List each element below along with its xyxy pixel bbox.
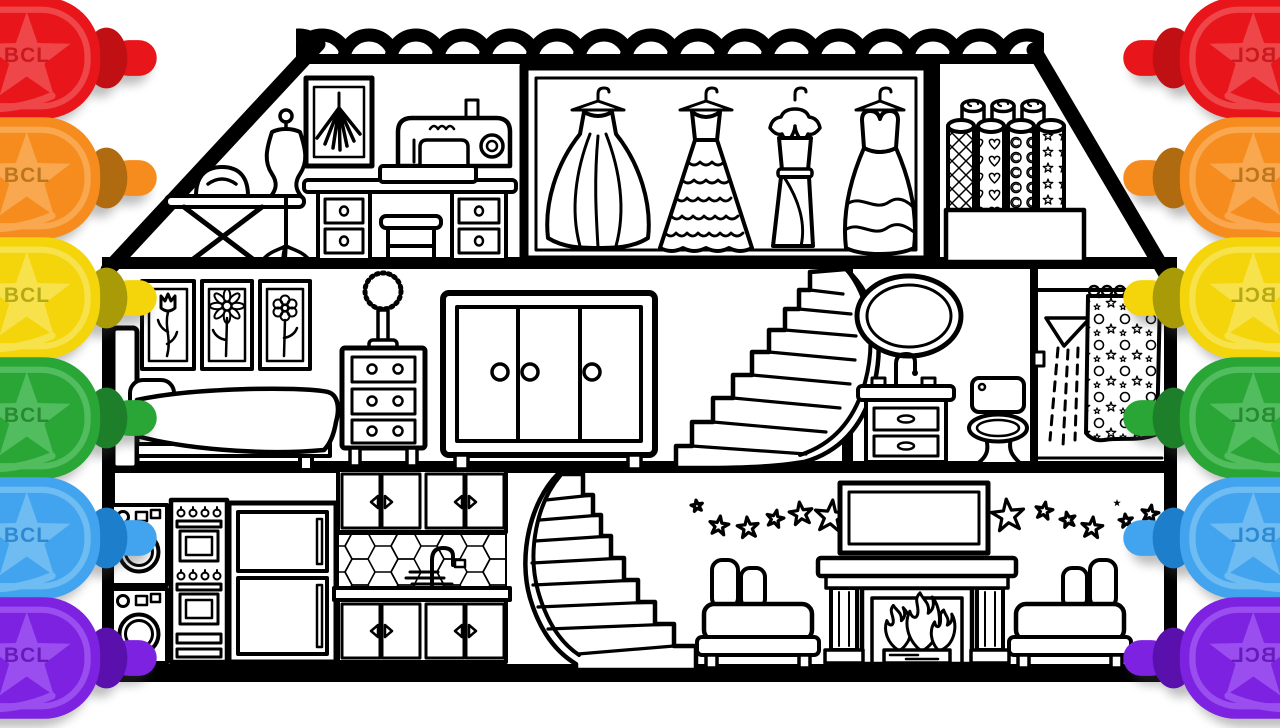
fabric-roll-moons bbox=[1010, 128, 1032, 216]
oval-mirror bbox=[857, 276, 961, 356]
fabric-storage bbox=[946, 101, 1084, 263]
coloring-page: { "palette": { "line": "#000000", "backg… bbox=[0, 0, 1280, 720]
dollhouse-line-art bbox=[0, 0, 1280, 720]
armchair-left bbox=[697, 560, 819, 668]
attic-picture bbox=[306, 78, 372, 166]
armchair-right bbox=[1009, 560, 1131, 668]
star-garland-right bbox=[990, 497, 1160, 538]
front-rolls bbox=[948, 120, 1064, 218]
bathroom bbox=[857, 276, 1027, 464]
refrigerator bbox=[229, 503, 336, 662]
star-garland-left bbox=[690, 498, 849, 538]
curved-staircase-lower bbox=[525, 474, 696, 670]
iron bbox=[196, 167, 248, 196]
storage-box bbox=[946, 210, 1084, 262]
lower-cabinets bbox=[338, 600, 506, 662]
blanket bbox=[137, 389, 338, 452]
washing-machine-top bbox=[112, 505, 167, 585]
shower-room bbox=[1034, 286, 1162, 458]
shower-head bbox=[1046, 318, 1090, 346]
dress-closet bbox=[524, 66, 928, 260]
shower-mount bbox=[1034, 352, 1044, 366]
upper-cabinets bbox=[338, 470, 506, 532]
tulip-picture bbox=[142, 281, 194, 369]
living-room bbox=[690, 483, 1160, 668]
wardrobe bbox=[443, 293, 655, 469]
wall-right bbox=[1164, 286, 1177, 670]
nightstand bbox=[342, 273, 425, 466]
flower-picture bbox=[260, 281, 310, 369]
fireplace bbox=[818, 558, 1016, 664]
curved-staircase-upper bbox=[676, 269, 879, 468]
toilet bbox=[969, 378, 1027, 464]
fabric-roll-diamond bbox=[950, 128, 972, 216]
bedroom bbox=[113, 273, 425, 470]
washing-machine-bottom bbox=[112, 589, 167, 663]
fabric-roll-stars bbox=[1040, 128, 1062, 216]
water-spray bbox=[1050, 342, 1088, 446]
sewing-machine bbox=[380, 100, 510, 182]
sewing-room bbox=[166, 78, 516, 266]
daisy-picture bbox=[202, 281, 252, 369]
logs bbox=[884, 650, 950, 663]
hex-tile-backsplash bbox=[338, 534, 506, 588]
fuzzy-lamp bbox=[365, 273, 401, 309]
stool bbox=[381, 216, 441, 262]
kitchen bbox=[112, 470, 510, 663]
television bbox=[840, 483, 988, 553]
fabric-roll-hearts bbox=[980, 128, 1002, 216]
double-oven bbox=[171, 500, 227, 662]
